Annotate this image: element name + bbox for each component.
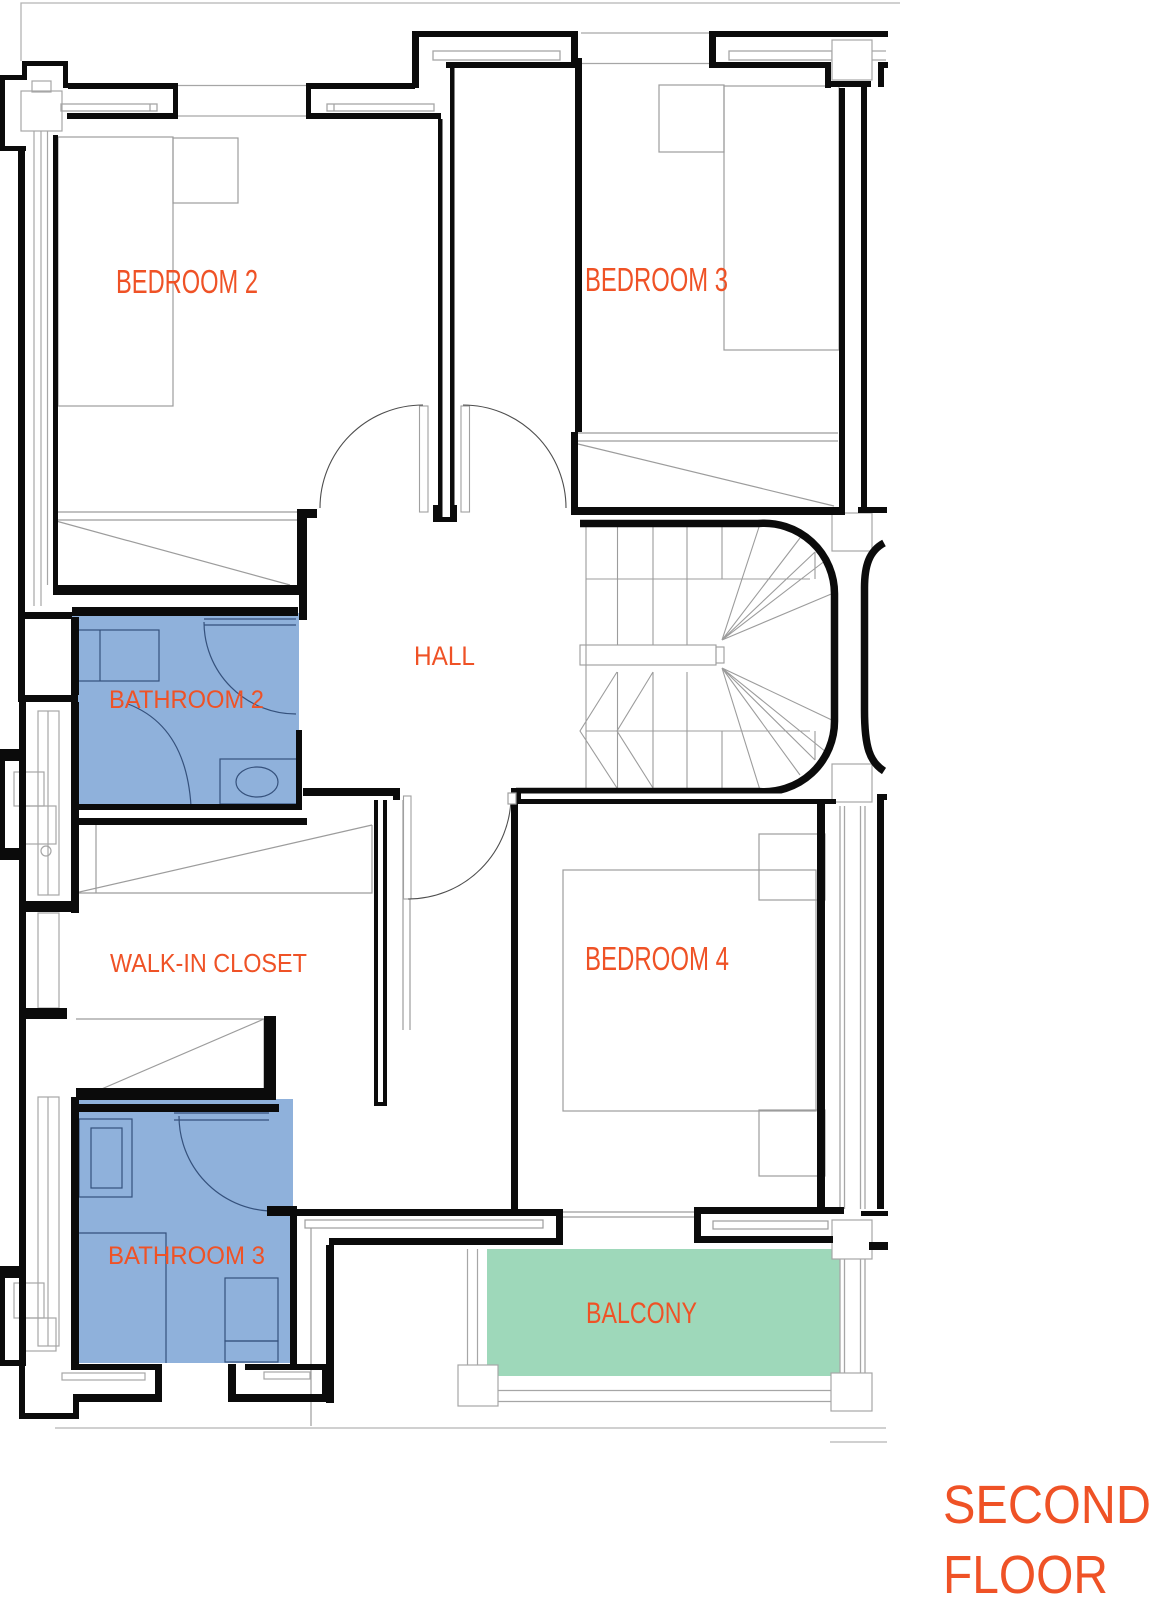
svg-text:BEDROOM 2: BEDROOM 2 (116, 263, 258, 300)
svg-text:HALL: HALL (414, 641, 475, 671)
svg-text:SECOND: SECOND (943, 1475, 1151, 1535)
svg-text:BEDROOM 4: BEDROOM 4 (585, 940, 729, 977)
svg-text:BATHROOM 3: BATHROOM 3 (108, 1242, 265, 1270)
svg-text:BEDROOM 3: BEDROOM 3 (585, 261, 728, 298)
svg-text:FLOOR: FLOOR (943, 1545, 1108, 1600)
svg-text:BALCONY: BALCONY (586, 1297, 697, 1330)
svg-text:WALK-IN CLOSET: WALK-IN CLOSET (110, 948, 307, 978)
svg-text:BATHROOM 2: BATHROOM 2 (109, 686, 264, 714)
